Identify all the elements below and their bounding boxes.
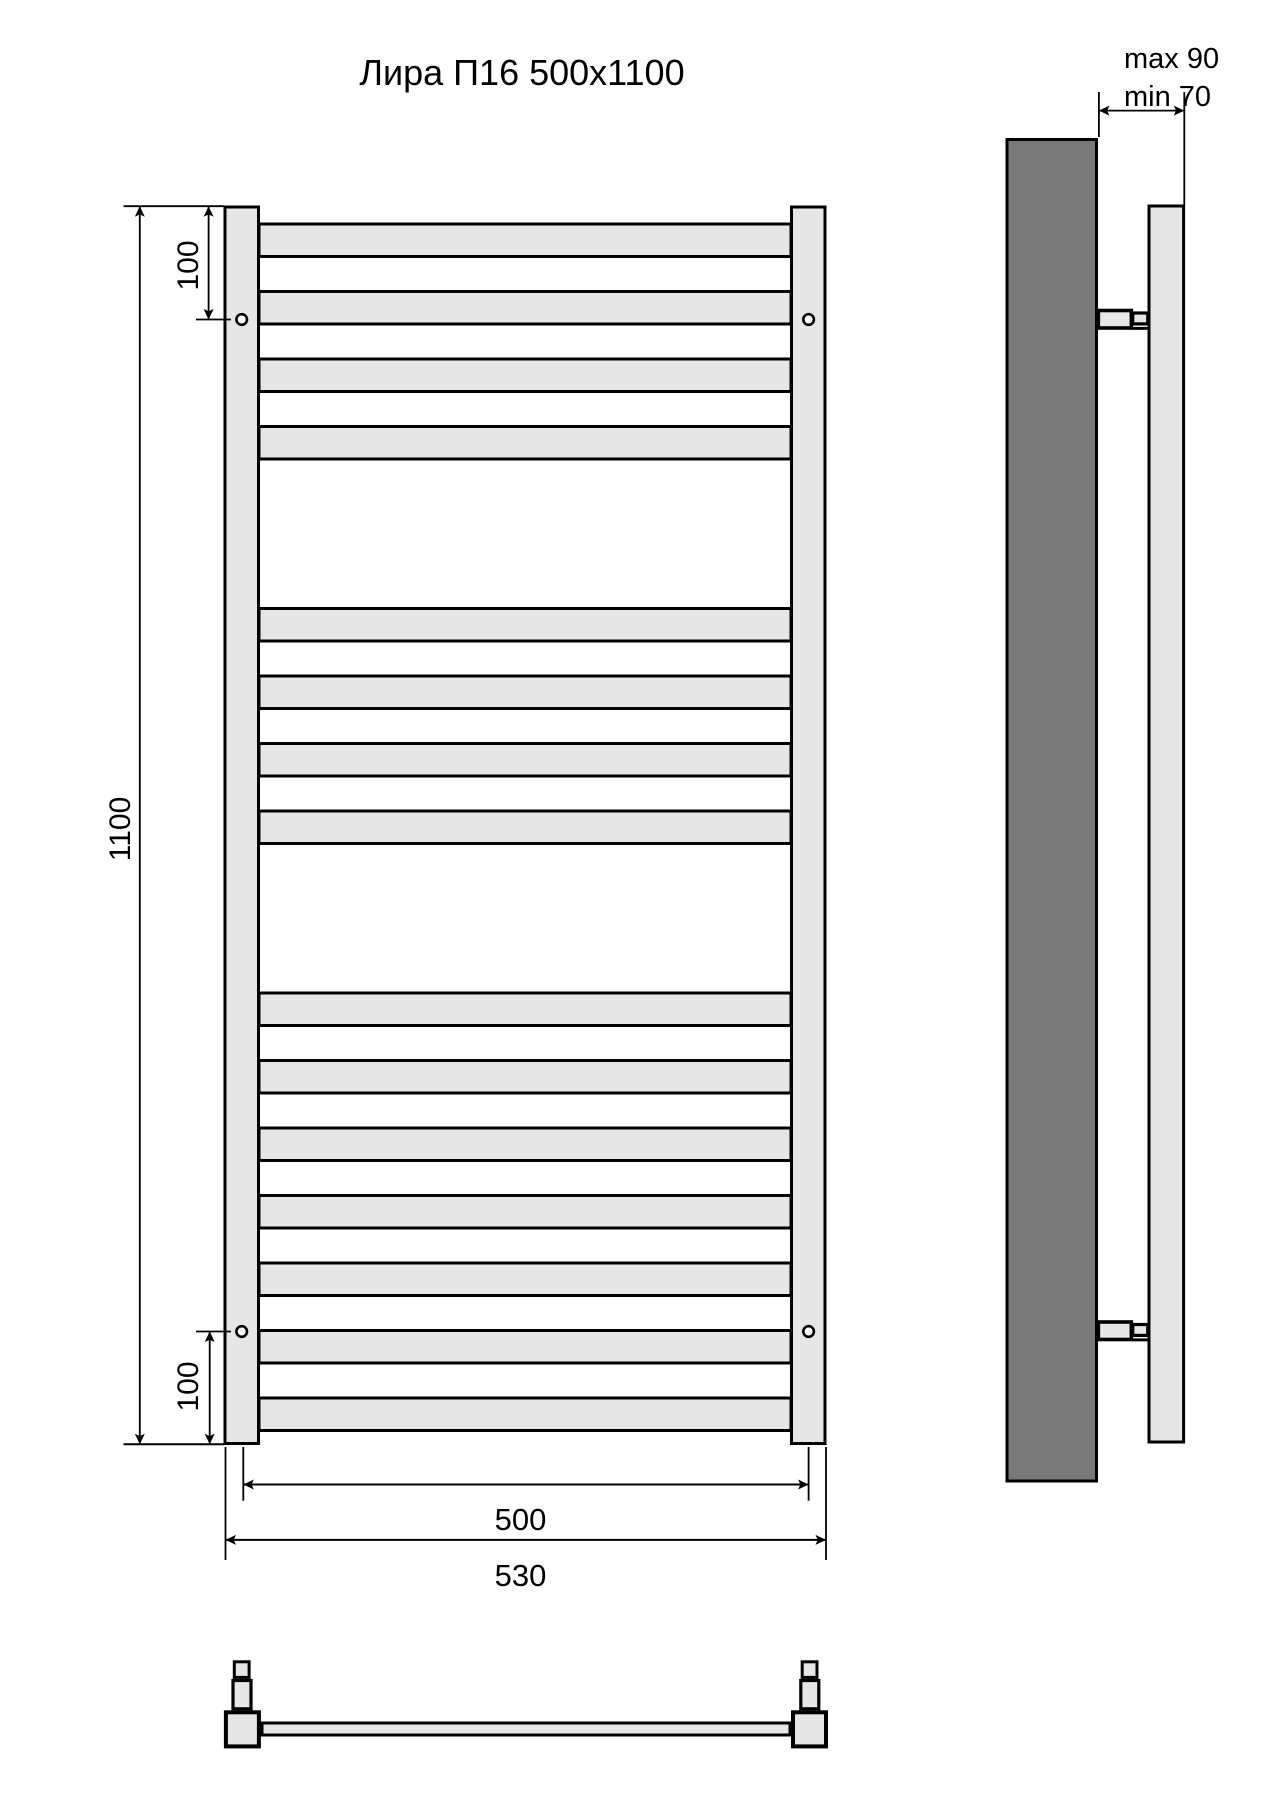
svg-text:min 70: min 70 bbox=[1124, 81, 1211, 113]
svg-text:100: 100 bbox=[172, 1361, 205, 1411]
svg-text:1100: 1100 bbox=[104, 797, 137, 862]
svg-text:max 90: max 90 bbox=[1124, 43, 1219, 75]
svg-text:530: 530 bbox=[495, 1558, 547, 1593]
svg-text:500: 500 bbox=[495, 1502, 547, 1537]
svg-text:Лира П16 500x1100: Лира П16 500x1100 bbox=[359, 52, 684, 93]
svg-text:100: 100 bbox=[172, 240, 205, 290]
